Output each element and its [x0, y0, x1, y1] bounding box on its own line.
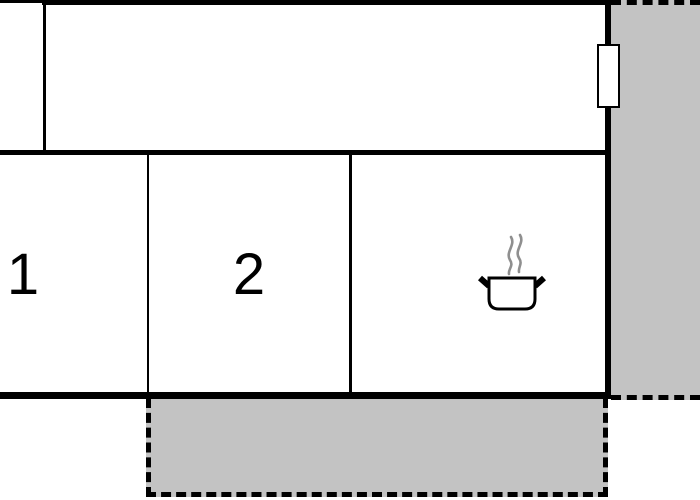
- steam-icon: [518, 235, 522, 272]
- middle-wall: [0, 150, 611, 155]
- terrace-right: [611, 0, 700, 400]
- floor-plan: 1 2: [0, 0, 700, 500]
- window-marker: [597, 44, 620, 108]
- top-wall-thin-segment: [0, 0, 46, 3]
- divider-left-room: [43, 0, 46, 153]
- cooking-pot-icon: [476, 232, 546, 312]
- terrace-bottom: [146, 398, 608, 497]
- bottom-wall: [0, 392, 611, 399]
- divider-room1-room2: [147, 153, 149, 394]
- pot-body: [489, 278, 535, 309]
- room-2-label: 2: [218, 246, 280, 304]
- room-1-label: 1: [0, 246, 46, 304]
- steam-icon: [509, 237, 513, 274]
- top-wall: [42, 0, 611, 5]
- divider-room2-kitchen: [349, 153, 352, 394]
- room-left-partial: [0, 5, 43, 150]
- room-top: [46, 5, 605, 150]
